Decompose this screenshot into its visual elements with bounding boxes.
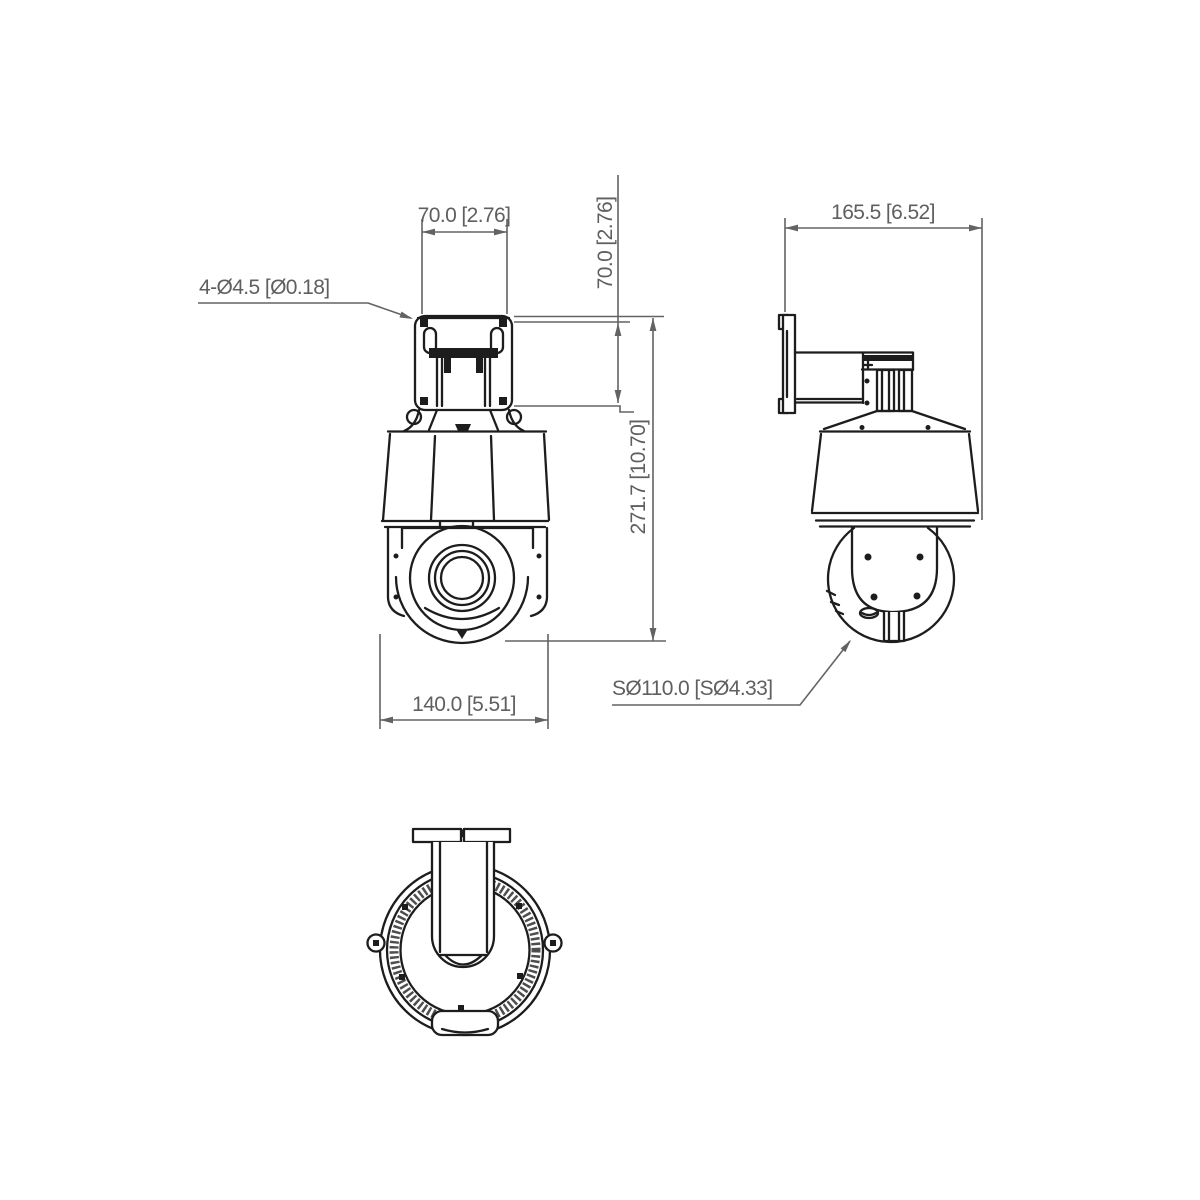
bracket-screw-hole [499, 397, 507, 405]
bottom-view [368, 829, 562, 1035]
lens-housing [382, 521, 548, 643]
dimension-bracket-height: 70.0 [2.76] [514, 175, 664, 412]
dim-label-holes: 4-Ø4.5 [Ø0.18] [199, 276, 330, 299]
dim-label-depth: 165.5 [6.52] [831, 201, 935, 224]
arrowhead [650, 628, 657, 641]
bracket-screw-hole [420, 319, 428, 327]
arrowhead [535, 717, 548, 724]
dim-label-top-width: 70.0 [2.76] [418, 204, 511, 227]
sphere-side [827, 528, 954, 642]
dimension-top-width: 70.0 [2.76] [418, 204, 511, 314]
arrowhead [615, 323, 622, 336]
bottom-lug [432, 1011, 498, 1035]
ring-screw [402, 904, 408, 910]
technical-drawing-page: 70.0 [2.76] 70.0 [2.76] 271.7 [10.70] 14… [0, 0, 1200, 1200]
ring-screw [516, 903, 522, 909]
top-cover [383, 424, 549, 520]
front-view [382, 316, 549, 643]
top-cover-side [812, 411, 978, 527]
arrowhead [494, 229, 507, 236]
arrowhead [400, 312, 414, 320]
callout-sphere-diameter: SØ110.0 [SØ4.33] [612, 640, 851, 705]
wall-plate [779, 315, 795, 413]
panel-screw [914, 593, 921, 600]
side-view [779, 315, 978, 642]
callout-mounting-holes: 4-Ø4.5 [Ø0.18] [198, 276, 413, 319]
ring-screw [399, 974, 405, 980]
sphere-outline [410, 526, 514, 630]
dim-label-bracket-height: 70.0 [2.76] [594, 197, 617, 290]
bracket-arm [795, 353, 913, 412]
panel-screw [871, 594, 878, 601]
dimensions: 70.0 [2.76] 70.0 [2.76] 271.7 [10.70] 14… [198, 175, 982, 729]
arrowhead [969, 225, 982, 232]
panel-screw [917, 554, 924, 561]
arrowhead [615, 390, 622, 403]
arrowhead [785, 225, 798, 232]
dim-label-sphere-diameter: SØ110.0 [SØ4.33] [612, 677, 772, 700]
mounting-bracket [415, 316, 512, 410]
dim-label-total-height: 271.7 [10.70] [627, 420, 650, 535]
arrowhead [650, 318, 657, 331]
lens [429, 545, 495, 611]
arrowhead [422, 229, 435, 236]
bracket-screw-hole [420, 397, 428, 405]
dimension-body-width: 140.0 [5.51] [380, 634, 548, 729]
arrowhead [380, 717, 393, 724]
dimension-total-height: 271.7 [10.70] [505, 318, 666, 641]
pan-body-panel [852, 528, 937, 612]
camera-dimensional-drawing: 70.0 [2.76] 70.0 [2.76] 271.7 [10.70] 14… [0, 0, 1200, 1200]
ring-screw [517, 973, 523, 979]
panel-screw [865, 554, 872, 561]
bracket-screw-hole [499, 319, 507, 327]
dim-label-body-width: 140.0 [5.51] [412, 693, 516, 716]
